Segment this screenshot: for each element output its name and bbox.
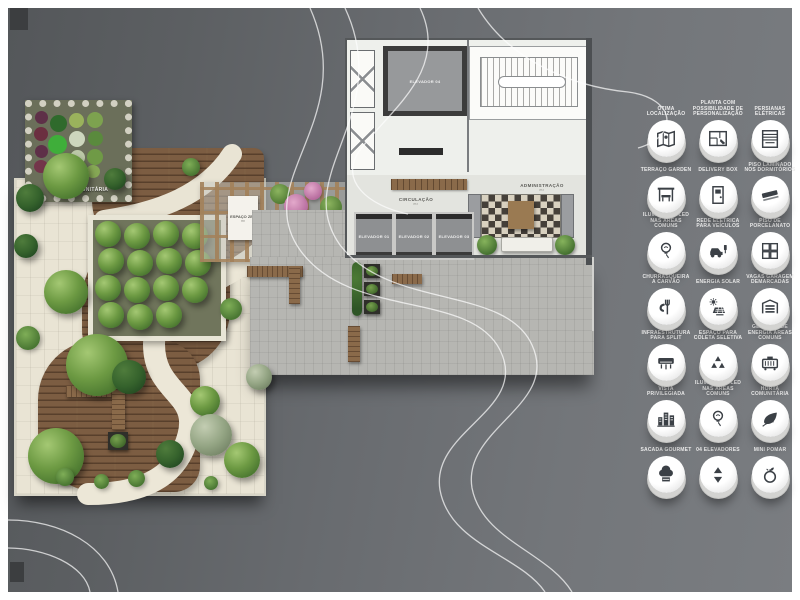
legend-item: 04 ELEVADORES [692, 438, 744, 493]
legend-item: PERSIANAS ELÉTRICAS [744, 102, 796, 157]
rendered-site-plan-image: HORTA COMUNITÁRIA ESPAÇO ZEN m² [0, 0, 800, 600]
legend-item-label: REDE ELÉTRICA PARA VEÍCULOS [692, 214, 744, 230]
grove-tree [124, 223, 150, 249]
bush [156, 440, 184, 468]
crop-plants [69, 131, 85, 147]
grove-tree [95, 275, 121, 301]
legend-item: ESPAÇO PARA COLETA SELETIVA [692, 326, 744, 381]
legend-item-label: VAGAS GARAGEM DEMARCADAS [744, 270, 796, 286]
planter-box [108, 432, 128, 450]
apple-icon [752, 456, 789, 493]
tree [43, 153, 89, 199]
elevator-04-room: ELEVADOR 04 [375, 40, 469, 172]
bush [128, 470, 145, 487]
legend-item: ENERGIA SOLAR [692, 270, 744, 325]
grove-tree [153, 221, 179, 247]
crop-plants [48, 135, 67, 154]
bush [56, 468, 74, 486]
crop-plants [35, 145, 48, 158]
elevator-arrows-icon [700, 456, 737, 493]
delivery-locker-icon [700, 176, 737, 213]
legend-item-label: ESPAÇO PARA COLETA SELETIVA [692, 326, 744, 342]
elevator-04: ELEVADOR 04 [383, 46, 467, 116]
legend-item-label: HORTA COMUNITÁRIA [744, 382, 796, 398]
legend-item-label: ILUMINAÇÃO LED NAS ÁREAS COMUNS [640, 214, 692, 230]
legend-item: PLANTA COM POSSIBILIDADE DE PERSONALIZAÇ… [692, 102, 744, 157]
hedge-strip [352, 262, 362, 316]
ac-split-icon [648, 344, 685, 381]
circulacao-label: CIRCULAÇÃO m² [381, 197, 451, 206]
bush [204, 476, 218, 490]
legend-item: SACADA GOURMET [640, 438, 692, 493]
grove-tree [98, 302, 124, 328]
led-bulb-icon [700, 400, 737, 437]
legend-item: PISO DE PORCELANATO [744, 214, 796, 269]
legend-item: INFRAESTRUTURA PARA SPLIT [640, 326, 692, 381]
legend-item-label: INFRAESTRUTURA PARA SPLIT [640, 326, 692, 342]
crop-plants [34, 127, 48, 141]
legend-item-label: PLANTA COM POSSIBILIDADE DE PERSONALIZAÇ… [692, 102, 744, 118]
legend-item: VAGAS GARAGEM DEMARCADAS [744, 270, 796, 325]
legend-item: ILUMINAÇÃO LED NAS ÁREAS COMUNS [692, 382, 744, 437]
lobby-rug [481, 194, 561, 238]
administracao-label: ADMINISTRAÇÃO m² [497, 183, 587, 192]
legend-item-label: CHURRASQUEIRA A CARVÃO [640, 270, 692, 286]
administracao-area: m² [497, 188, 587, 192]
legend-item: GERADOR DE ENERGIA ÁREAS COMUNS [744, 326, 796, 381]
grove-tree [127, 250, 153, 276]
chef-hat-icon [648, 456, 685, 493]
grove-tree [156, 248, 182, 274]
side-console [561, 194, 574, 238]
legend-item-label: ILUMINAÇÃO LED NAS ÁREAS COMUNS [692, 382, 744, 398]
legend-item: TERRAÇO GARDEN [640, 158, 692, 213]
crop-plants [35, 111, 48, 124]
elevator-03: ELEVADOR 03 [434, 212, 474, 260]
legend-item-label: PISO LAMINADO NOS DORMITÓRIOS [744, 158, 796, 174]
tree [14, 234, 38, 258]
circulacao-area: m² [381, 202, 451, 206]
corner-mark-bottom-left [10, 562, 24, 582]
grove-tree [98, 248, 124, 274]
shaft-box [350, 112, 375, 170]
blinds-icon [752, 120, 789, 157]
garage-icon [752, 288, 789, 325]
ev-charger-icon [700, 232, 737, 269]
legend-item-label: SACADA GOURMET [641, 438, 692, 454]
bush [104, 168, 126, 190]
potted-plant [477, 235, 497, 255]
legend-item: VISTA PRIVILEGIADA [640, 382, 692, 437]
legend-item: ILUMINAÇÃO LED NAS ÁREAS COMUNS [640, 214, 692, 269]
legend-item: HORTA COMUNITÁRIA [744, 382, 796, 437]
pink-flowers [304, 182, 322, 200]
led-bulb-icon [648, 232, 685, 269]
planter-box [364, 300, 380, 314]
wood-plank-icon [752, 176, 789, 213]
legend-item: CHURRASQUEIRA A CARVÃO [640, 270, 692, 325]
legend-item-label: DELIVERY BOX [698, 158, 737, 174]
floorplan-icon [700, 120, 737, 157]
recycle-icon [700, 344, 737, 381]
legend-item: DELIVERY BOX [692, 158, 744, 213]
planter-box [364, 282, 380, 296]
wood-counter [391, 179, 467, 190]
bench [348, 326, 360, 362]
building-lobby: CIRCULAÇÃO m² ADMINISTRAÇÃO m² ELEVADOR … [345, 175, 592, 257]
grill-icon [648, 288, 685, 325]
bench [112, 388, 125, 430]
tile-icon [752, 232, 789, 269]
grove-tree [153, 275, 179, 301]
legend-item: ÓTIMA LOCALIZAÇÃO [640, 102, 692, 157]
elevator-04-sill [399, 148, 443, 155]
espaco-zen-area: m² [241, 219, 245, 223]
bush [16, 326, 40, 350]
leaves-icon [752, 400, 789, 437]
grove-tree [156, 302, 182, 328]
solar-panel-icon [700, 288, 737, 325]
grove-tree [95, 221, 121, 247]
tree [44, 270, 88, 314]
potted-plant [555, 235, 575, 255]
crop-plants [69, 113, 84, 128]
legend-item-label: MINI POMAR [754, 438, 787, 454]
planter-box [364, 264, 380, 278]
bush [182, 158, 200, 176]
legend-item: REDE ELÉTRICA PARA VEÍCULOS [692, 214, 744, 269]
concrete-courtyard-left [252, 210, 348, 257]
elevator-03-label: ELEVADOR 03 [439, 234, 470, 239]
plan-canvas: HORTA COMUNITÁRIA ESPAÇO ZEN m² [8, 8, 792, 592]
tree [190, 386, 220, 416]
crop-plants [50, 115, 67, 132]
skyline-icon [648, 400, 685, 437]
legend-item: MINI POMAR [744, 438, 796, 493]
amenities-legend: ÓTIMA LOCALIZAÇÃO PLANTA COM POSSIBILIDA… [640, 102, 796, 493]
elevator-01-label: ELEVADOR 01 [359, 234, 390, 239]
elevator-04-label: ELEVADOR 04 [410, 79, 441, 84]
crop-plants [88, 131, 103, 146]
tree [112, 360, 146, 394]
legend-item: PISO LAMINADO NOS DORMITÓRIOS [744, 158, 796, 213]
crop-plants [87, 149, 103, 165]
grove-tree [127, 304, 153, 330]
grove-tree [182, 277, 208, 303]
lobby-table [508, 201, 534, 229]
legend-item-label: 04 ELEVADORES [696, 438, 740, 454]
building-right-wall [586, 38, 592, 265]
pergola-bench-icon [648, 176, 685, 213]
corner-mark-top-left [10, 8, 28, 30]
bush [246, 364, 272, 390]
elevator-02-label: ELEVADOR 02 [399, 234, 430, 239]
legend-item-label: ENERGIA SOLAR [696, 270, 740, 286]
building-upper-floor: ELEVADOR 04 [345, 38, 592, 179]
grove-tree [124, 277, 150, 303]
shaft-box [350, 50, 375, 108]
stairwell [469, 46, 587, 120]
tree [16, 184, 44, 212]
elevator-01: ELEVADOR 01 [354, 212, 394, 260]
tree [224, 442, 260, 478]
map-icon [648, 120, 685, 157]
bush [94, 474, 109, 489]
legend-item-label: ÓTIMA LOCALIZAÇÃO [640, 102, 692, 118]
stair-handrail [498, 76, 566, 88]
legend-item-label: TERRAÇO GARDEN [641, 158, 692, 174]
building-bottom-wall [345, 255, 592, 258]
bench [392, 274, 422, 284]
lobby-bench [501, 237, 553, 252]
legend-item-label: VISTA PRIVILEGIADA [640, 382, 692, 398]
legend-item-label: PISO DE PORCELANATO [744, 214, 796, 230]
elevator-02: ELEVADOR 02 [394, 212, 434, 260]
railing-right [592, 257, 594, 331]
crop-plants [87, 112, 103, 128]
legend-item-label: GERADOR DE ENERGIA ÁREAS COMUNS [744, 326, 796, 342]
bench [289, 266, 300, 304]
bush [220, 298, 242, 320]
legend-item-label: PERSIANAS ELÉTRICAS [744, 102, 796, 118]
generator-icon [752, 344, 789, 381]
